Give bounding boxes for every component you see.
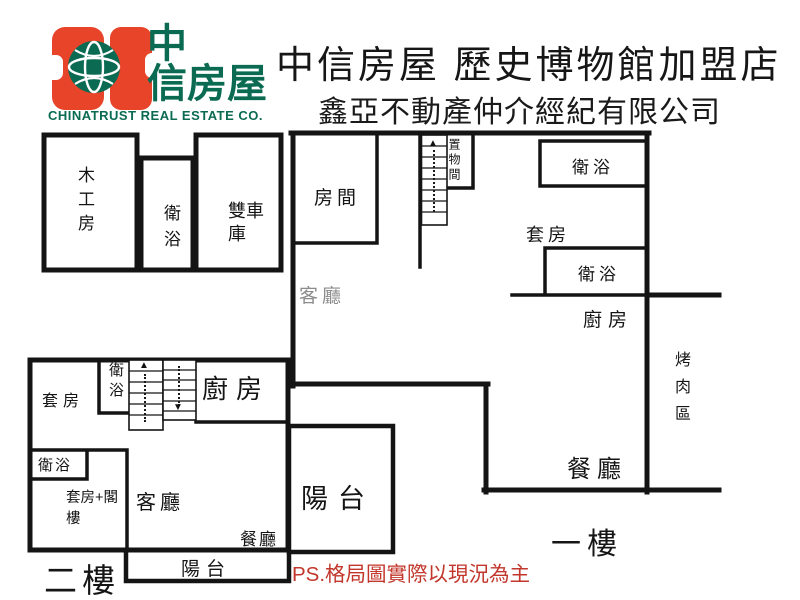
f1-stairs-up-arrow-icon: ▲ [428,139,438,149]
room-label-f1-bath-top: 衛浴 [572,153,614,178]
f2-stairs-up-arrow-icon: ▲ [139,361,149,371]
room-label-f2-bath-top: 衛浴 [105,362,126,402]
room-label-f1-bath-mid: 衛浴 [578,260,620,285]
f2-stairs-up-dotted-line [144,374,146,422]
floor1-label: 一樓 [551,519,623,563]
room-label-f2-living: 客廳 [136,486,184,515]
room-label-f2-suite-loft: 套房+閣樓 [66,488,120,530]
disclaimer-note: PS.格局圖實際以現況為主 [292,557,530,587]
floorplan-page: 中 信房屋 CHINATRUST REAL ESTATE CO. 中信房屋 歷史… [0,0,800,600]
logo-english: CHINATRUST REAL ESTATE CO. [48,108,263,123]
logo-name-line2: 信房屋 [147,64,267,104]
page-title: 中信房屋 歷史博物館加盟店 [276,34,782,89]
room-label-f1-suite: 套房 [526,221,570,247]
room-label-f1-storage: 置物間 [446,138,463,183]
room-label-f1-living: 客廳 [299,281,345,308]
floor1-inner-walls [293,133,719,295]
logo-name-line1: 中 [147,24,187,64]
room-label-f2-bath-mid: 衛浴 [38,454,72,475]
f2-stairs-down-dotted-line [178,366,180,406]
f1-stairs-dotted-line [433,150,435,212]
room-label-f2-dining: 餐廳 [240,525,278,550]
room-label-f2-balcony-square: 陽台 [301,477,375,516]
floor2-label: 二樓 [44,554,120,600]
globe-icon [68,41,120,93]
room-label-woodwork: 木工房 [72,166,97,238]
room-label-f1-kitchen: 廚房 [583,305,633,332]
room-label-f1-dining: 餐廳 [567,449,627,484]
room-label-garage-bath: 衛浴 [158,204,183,256]
room-label-double-garage: 雙車庫 [228,200,272,247]
room-label-f2-balcony-strip: 陽台 [181,554,231,581]
room-label-f2-suite: 套房 [42,387,84,411]
page-subtitle: 鑫亞不動產仲介經紀有限公司 [318,87,721,131]
f2-stairs-down-arrow-icon: ▼ [173,403,183,413]
room-label-f1-bbq: 烤肉區 [668,351,692,432]
chinatrust-logo-icon [46,27,160,110]
room-label-f2-kitchen: 廚房 [202,369,270,406]
room-label-f1-bedroom: 房間 [314,183,360,210]
